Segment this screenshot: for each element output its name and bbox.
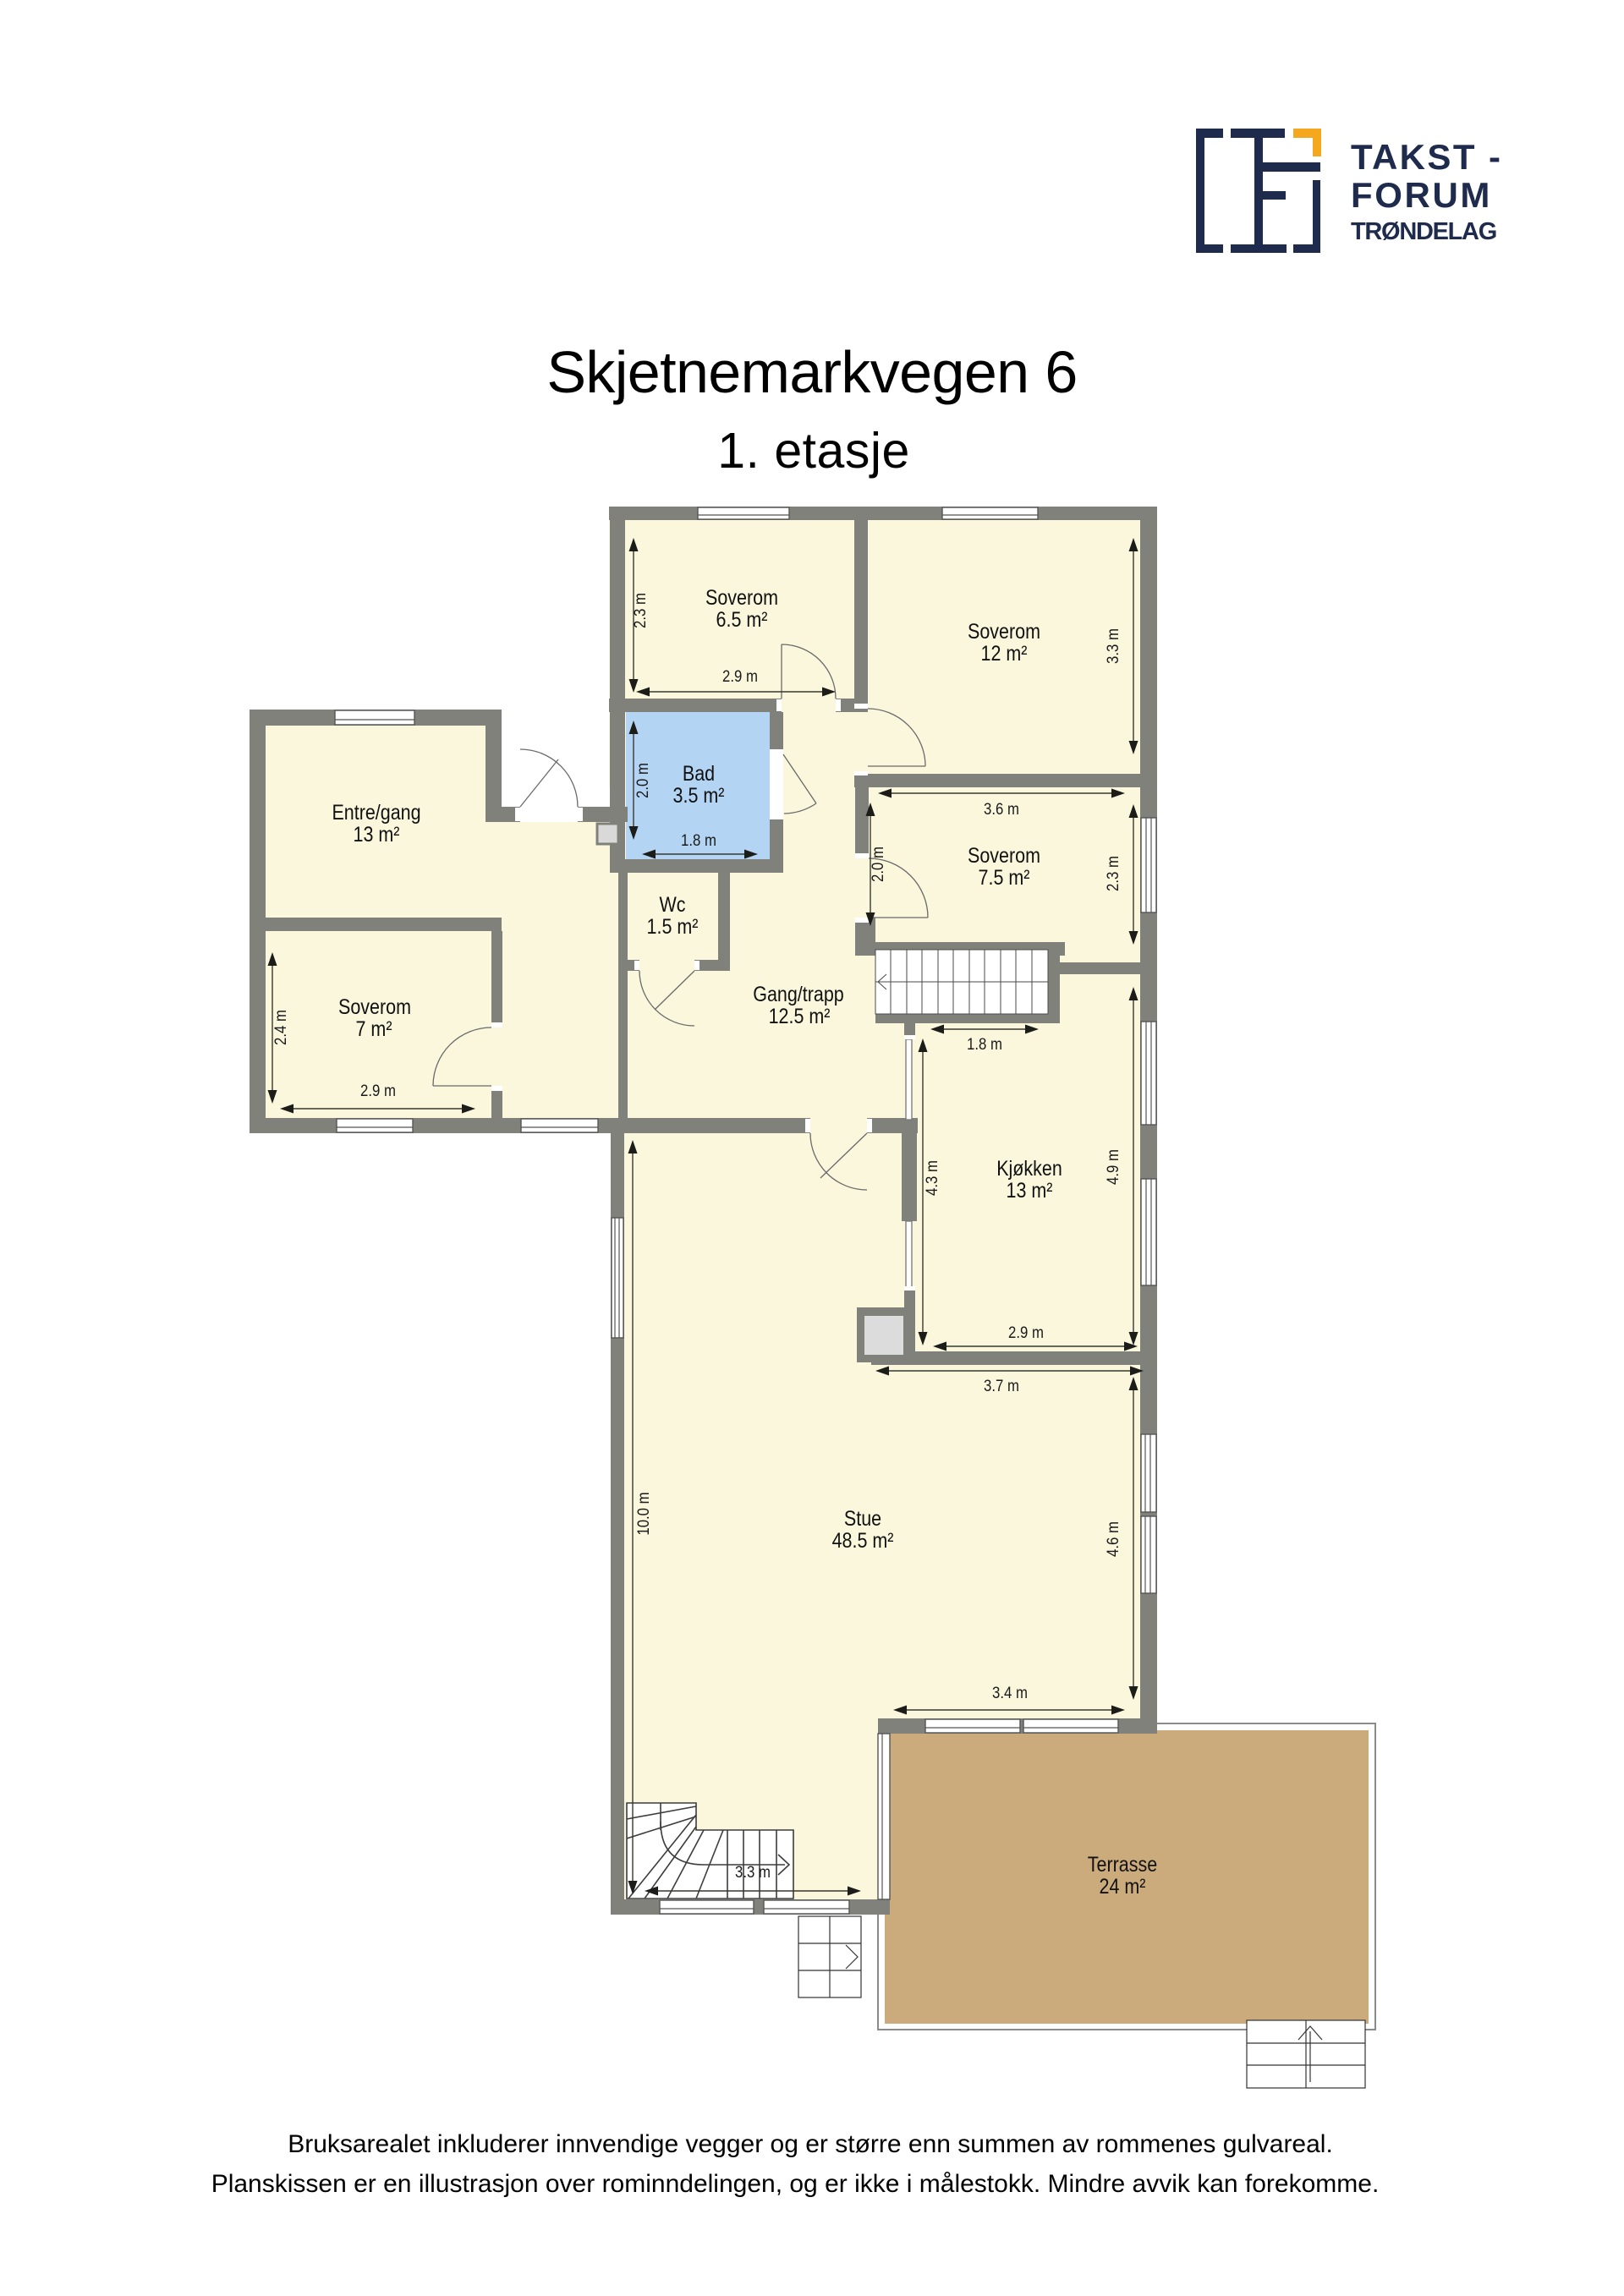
svg-text:12.5 m²: 12.5 m² <box>769 1004 831 1027</box>
svg-text:Terrasse: Terrasse <box>1088 1852 1157 1876</box>
svg-text:13 m²: 13 m² <box>354 822 400 846</box>
svg-text:2.0 m: 2.0 m <box>634 763 651 798</box>
svg-text:2.4 m: 2.4 m <box>272 1010 289 1045</box>
svg-text:2.9 m: 2.9 m <box>722 667 758 685</box>
svg-text:Soverom: Soverom <box>338 995 411 1018</box>
svg-text:2.3 m: 2.3 m <box>631 593 649 628</box>
svg-text:48.5 m²: 48.5 m² <box>832 1528 894 1552</box>
svg-text:2.0 m: 2.0 m <box>869 847 886 882</box>
svg-text:3.6 m: 3.6 m <box>984 800 1019 818</box>
svg-text:1.8 m: 1.8 m <box>967 1035 1002 1053</box>
svg-text:3.4 m: 3.4 m <box>992 1684 1028 1701</box>
svg-text:Planskissen er en illustrasjon: Planskissen er en illustrasjon over romi… <box>211 2170 1380 2198</box>
svg-text:TAKST -: TAKST - <box>1351 137 1502 177</box>
svg-text:Stue: Stue <box>844 1506 881 1530</box>
svg-text:2.9 m: 2.9 m <box>360 1082 396 1099</box>
svg-text:1.8 m: 1.8 m <box>681 831 716 849</box>
svg-text:3.5 m²: 3.5 m² <box>673 783 725 807</box>
svg-text:7 m²: 7 m² <box>356 1016 392 1040</box>
svg-text:6.5 m²: 6.5 m² <box>716 607 768 631</box>
svg-text:3.3 m: 3.3 m <box>735 1863 771 1881</box>
svg-text:13 m²: 13 m² <box>1007 1178 1053 1202</box>
svg-text:4.6 m: 4.6 m <box>1104 1521 1122 1557</box>
svg-text:12 m²: 12 m² <box>981 641 1028 665</box>
svg-text:7.5 m²: 7.5 m² <box>979 865 1030 889</box>
svg-text:Bruksarealet inkluderer innven: Bruksarealet inkluderer innvendige vegge… <box>288 2130 1333 2158</box>
svg-text:Skjetnemarkvegen 6: Skjetnemarkvegen 6 <box>546 339 1077 405</box>
svg-text:4.9 m: 4.9 m <box>1104 1149 1122 1185</box>
svg-text:4.3 m: 4.3 m <box>923 1160 941 1196</box>
svg-text:10.0 m: 10.0 m <box>634 1492 652 1535</box>
svg-text:2.9 m: 2.9 m <box>1008 1323 1044 1341</box>
svg-text:Soverom: Soverom <box>968 843 1040 867</box>
svg-text:Gang/trapp: Gang/trapp <box>753 982 843 1006</box>
svg-text:3.3 m: 3.3 m <box>1104 628 1122 664</box>
svg-text:24 m²: 24 m² <box>1100 1874 1146 1898</box>
svg-text:FORUM: FORUM <box>1351 175 1492 215</box>
svg-text:Soverom: Soverom <box>705 585 778 609</box>
svg-text:3.7 m: 3.7 m <box>984 1377 1019 1395</box>
svg-text:2.3 m: 2.3 m <box>1104 856 1122 891</box>
svg-text:Wc: Wc <box>659 892 685 916</box>
svg-text:Kjøkken: Kjøkken <box>996 1156 1062 1180</box>
svg-text:Bad: Bad <box>683 761 715 785</box>
svg-text:Entre/gang: Entre/gang <box>332 800 420 824</box>
svg-text:1. etasje: 1. etasje <box>717 423 910 479</box>
svg-text:Soverom: Soverom <box>968 619 1040 643</box>
svg-text:TRØNDELAG: TRØNDELAG <box>1351 218 1496 245</box>
svg-text:1.5 m²: 1.5 m² <box>647 914 699 938</box>
